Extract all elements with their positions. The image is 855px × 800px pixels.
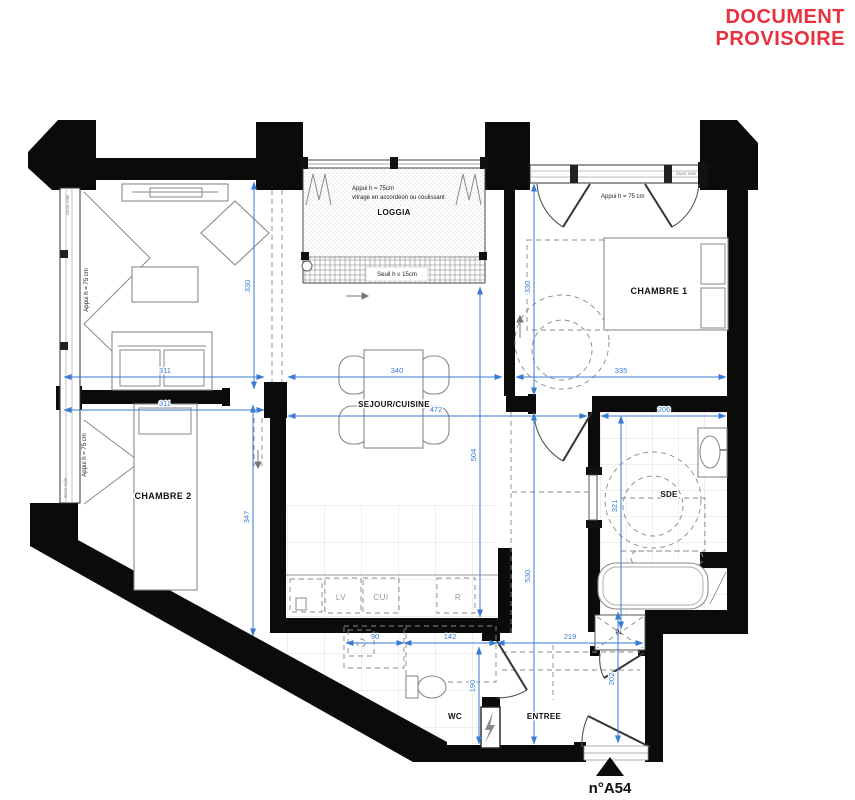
dim-chambre1-width: 335 xyxy=(615,366,628,375)
appliance-label-lv: LV xyxy=(336,593,346,602)
appliance-label-cui: CUI xyxy=(373,593,388,602)
stamp-line-2: PROVISOIRE xyxy=(716,28,845,50)
blind-note-chambre1: Store toile xyxy=(676,171,697,176)
dim-chambre2-height: 347 xyxy=(242,511,251,524)
dim-sejour-width: 311 xyxy=(159,366,171,375)
sejour-sill-note: Appui h = 75 cm xyxy=(84,268,90,312)
provisional-document-stamp: DOCUMENT PROVISOIRE xyxy=(716,6,845,51)
window-mullion xyxy=(60,342,68,350)
drain-icon xyxy=(302,261,312,271)
wall-right-jut xyxy=(700,552,727,568)
dim-chambre2-width: 311 xyxy=(159,399,171,408)
wall-sejour-chambre1 xyxy=(504,188,515,396)
wall-jamb-chambre2-door xyxy=(222,388,230,406)
loggia-sill-note: Appui h = 75cm xyxy=(352,186,394,192)
wall-kitchen-right xyxy=(498,548,512,633)
room-label-sde: SDE xyxy=(660,490,678,499)
dim-entree-height: 202 xyxy=(607,673,616,686)
sofa-icon xyxy=(112,332,212,390)
window-mullion xyxy=(60,250,68,258)
room-label-entree: ENTREE xyxy=(527,712,562,721)
appliance-label-r: R xyxy=(455,593,461,602)
unit-number: n°A54 xyxy=(589,780,632,797)
wall-sejour-chambre2 xyxy=(58,390,230,404)
blind-note-chambre2: Store toile xyxy=(63,477,68,498)
dim-sejour-height: 330 xyxy=(243,280,252,293)
toilet-icon xyxy=(406,676,418,698)
sde-sliding-door xyxy=(589,475,597,520)
wall-pier-loggia-left xyxy=(256,122,303,190)
blind-note-sejour: Store toile xyxy=(65,194,70,215)
dim-sejour-total-width: 472 xyxy=(430,405,443,414)
wall-bottom xyxy=(436,745,584,762)
room-label-chambre2: CHAMBRE 2 xyxy=(134,491,191,501)
room-label-chambre1: CHAMBRE 1 xyxy=(630,286,687,296)
wall-pier-center xyxy=(264,382,287,418)
bathtub-icon xyxy=(598,563,708,609)
chambre2-sill-note: Appui h = 75 cm xyxy=(82,433,88,477)
dining-table-icon xyxy=(364,350,423,448)
washbasin-icon xyxy=(698,428,727,477)
dim-wc-height: 190 xyxy=(468,680,477,693)
dim-cuisine-width: 340 xyxy=(391,366,404,375)
wall-jamb-chambre1-door xyxy=(528,394,536,414)
window-mullion xyxy=(570,165,578,183)
room-label-pl: PL xyxy=(615,630,623,636)
kitchen-tiles xyxy=(286,505,498,618)
threshold-label: Seuil h ≤ 15cm xyxy=(377,272,417,278)
dim-sde-height: 321 xyxy=(610,500,619,513)
room-label-loggia: LOGGIA xyxy=(377,208,410,217)
chambre1-sill-note: Appui h = 75 cm xyxy=(601,194,645,200)
stamp-line-1: DOCUMENT xyxy=(716,6,845,28)
dim-sejour-depth: 504 xyxy=(469,449,478,462)
coffee-table-icon xyxy=(132,267,198,302)
wall-top-sejour xyxy=(96,158,256,180)
dim-chambre1-height: 330 xyxy=(523,281,532,294)
wall-sde-left-upper xyxy=(588,412,600,468)
loggia-glazing-note: vitrage en accordéon ou coulissant xyxy=(352,195,445,201)
window-mullion xyxy=(664,165,672,183)
window-chambre1-band xyxy=(530,165,700,183)
floor-plan-page: DOCUMENT PROVISOIRE xyxy=(0,0,855,800)
dim-wc-width-2: 142 xyxy=(444,632,457,641)
room-label-sejour: SEJOUR/CUISINE xyxy=(358,400,430,409)
loggia-mullion xyxy=(390,157,398,169)
toilet-bowl-icon xyxy=(418,676,446,698)
wall-chambre2-right xyxy=(270,418,286,633)
dim-entree-width: 219 xyxy=(564,632,577,641)
wall-bottom-right-jamb xyxy=(648,742,663,762)
room-label-wc: WC xyxy=(448,712,462,721)
dim-sde-width: 206 xyxy=(658,405,671,414)
dim-corridor-height: 530 xyxy=(523,570,532,583)
wall-kitchen-bottom xyxy=(286,618,500,633)
dim-wc-width-1: 90 xyxy=(371,632,379,641)
floor-plan-svg: Seuil h ≤ 15cm Appui h = 75cm vitrage en… xyxy=(0,0,855,800)
wall-wc-divider-top xyxy=(482,633,500,641)
wall-pier-loggia-right xyxy=(485,122,530,190)
wall-entree-right xyxy=(645,610,663,762)
